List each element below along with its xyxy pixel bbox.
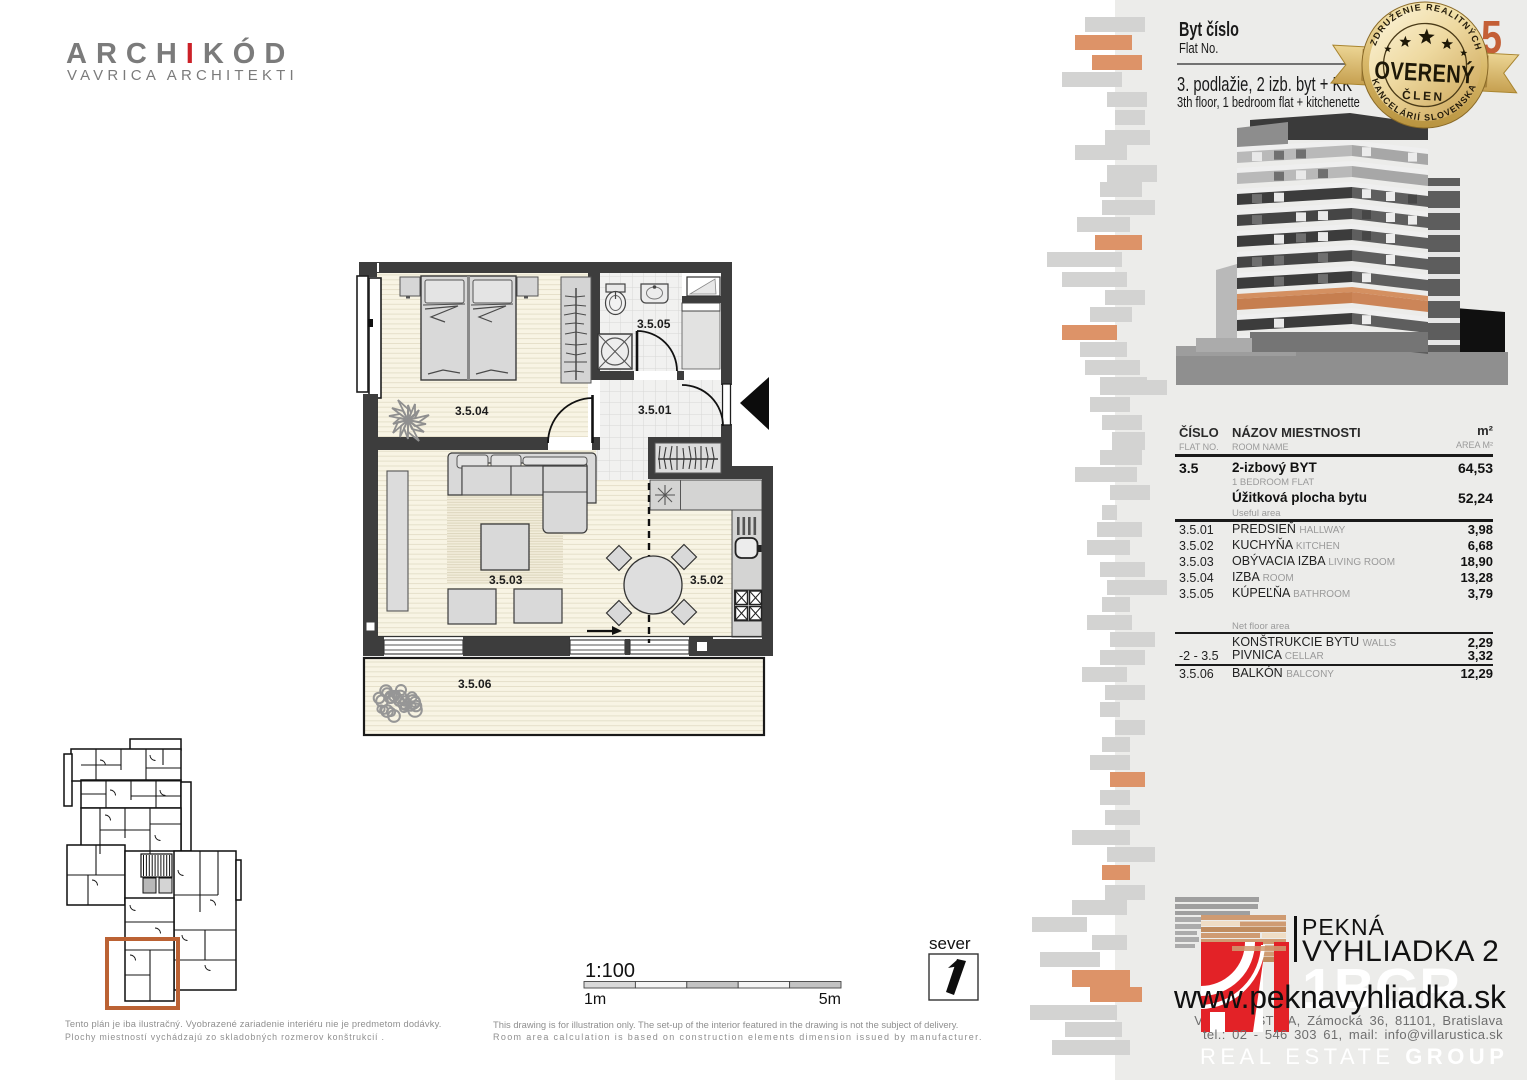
svg-text:3.5.04: 3.5.04	[455, 404, 489, 418]
svg-text:1:100: 1:100	[585, 960, 635, 982]
svg-text:1m: 1m	[584, 991, 606, 1008]
svg-text:sever: sever	[929, 934, 971, 953]
svg-text:5m: 5m	[819, 991, 841, 1008]
svg-text:3th floor, 1 bedroom flat + ki: 3th floor, 1 bedroom flat + kitchenette	[1177, 93, 1360, 110]
svg-text:3. podlažie, 2 izb. byt + KK: 3. podlažie, 2 izb. byt + KK	[1177, 73, 1352, 96]
svg-text:Byt číslo: Byt číslo	[1179, 18, 1239, 41]
svg-text:3.5.05: 3.5.05	[637, 317, 671, 331]
svg-text:3.5.01: 3.5.01	[638, 403, 672, 417]
svg-text:Flat No.: Flat No.	[1179, 39, 1218, 56]
svg-text:3.5.02: 3.5.02	[690, 573, 724, 587]
svg-text:3.5.06: 3.5.06	[458, 677, 492, 691]
svg-text:ČLEN: ČLEN	[1402, 87, 1445, 104]
svg-text:OVERENÝ: OVERENÝ	[1374, 56, 1476, 89]
svg-text:3.5.03: 3.5.03	[489, 573, 523, 587]
